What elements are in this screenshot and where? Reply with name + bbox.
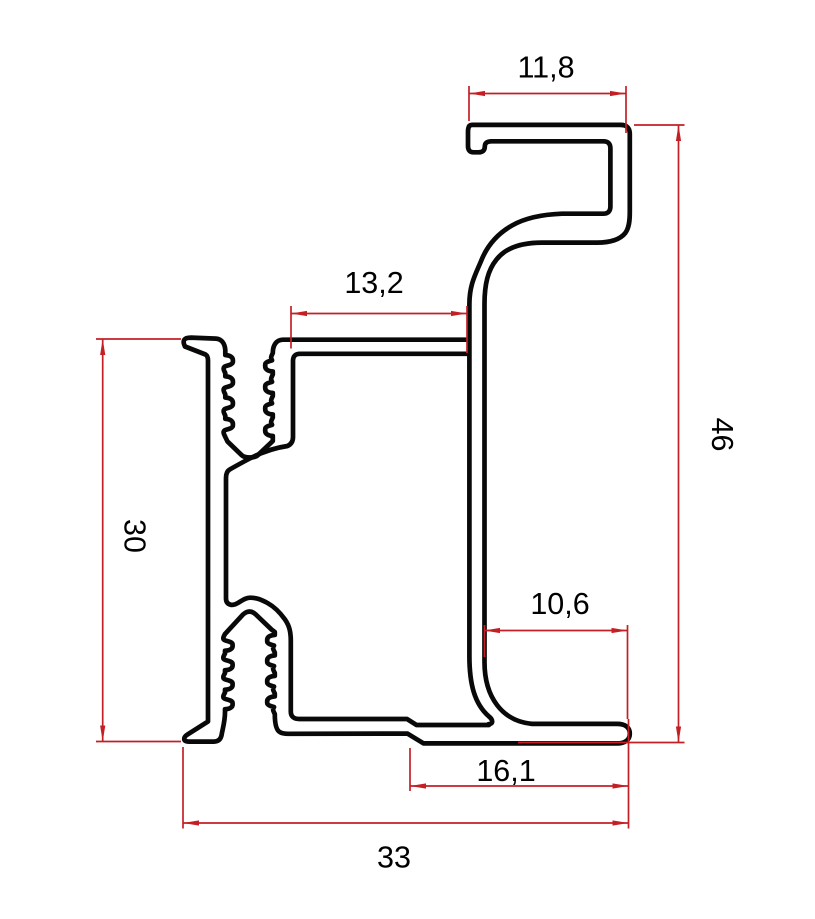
svg-text:13,2: 13,2	[344, 266, 403, 300]
svg-text:33: 33	[377, 841, 411, 875]
svg-text:16,1: 16,1	[476, 754, 535, 788]
svg-text:46: 46	[705, 418, 739, 452]
svg-text:11,8: 11,8	[517, 51, 574, 85]
svg-text:10,6: 10,6	[530, 587, 589, 621]
svg-text:30: 30	[118, 519, 152, 553]
